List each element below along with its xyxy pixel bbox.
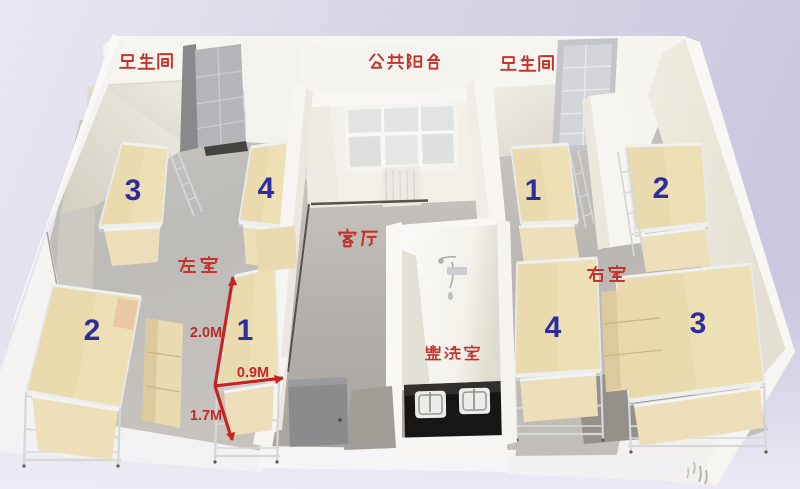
svg-text:2: 2 — [653, 172, 670, 205]
svg-text:2: 2 — [84, 314, 101, 347]
svg-text:3: 3 — [125, 174, 142, 207]
svg-text:0.9M: 0.9M — [237, 365, 269, 381]
svg-text:4: 4 — [545, 311, 562, 344]
svg-text:2.0M: 2.0M — [190, 325, 222, 341]
svg-text:3: 3 — [690, 307, 707, 340]
svg-text:1.7M: 1.7M — [190, 408, 222, 424]
svg-text:4: 4 — [258, 172, 275, 205]
svg-text:1: 1 — [237, 314, 254, 347]
svg-text:1: 1 — [525, 174, 542, 207]
